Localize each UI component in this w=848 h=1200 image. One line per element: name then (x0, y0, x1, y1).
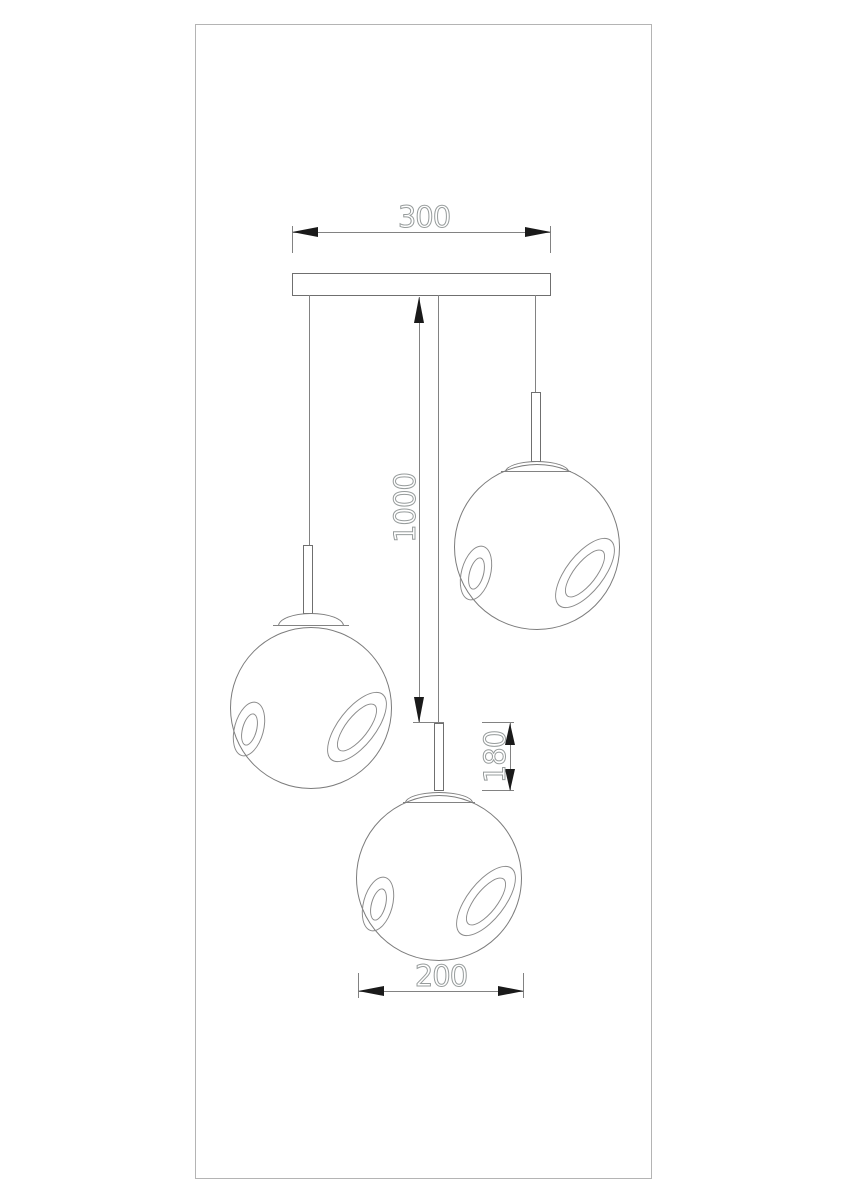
drawing-canvas: 300 1000 180 200 (0, 0, 848, 1200)
dim180-label: 180 (480, 702, 508, 812)
ceiling-canopy (292, 273, 551, 296)
lamp-left-cap-chord (273, 625, 349, 626)
dim1000-arrowhead-top-icon (414, 297, 424, 323)
dim200-label: 200 (358, 961, 524, 991)
lamp-upper-right-stem (531, 392, 541, 462)
dim1000-arrowhead-bottom-icon (414, 697, 424, 723)
dim1000-label: 1000 (390, 433, 420, 583)
cord-right (535, 295, 536, 392)
cord-left (309, 295, 310, 545)
lamp-bottom-stem (434, 723, 444, 791)
lamp-left-stem (303, 545, 313, 614)
dim300-label: 300 (292, 202, 556, 232)
cord-middle (438, 295, 439, 723)
